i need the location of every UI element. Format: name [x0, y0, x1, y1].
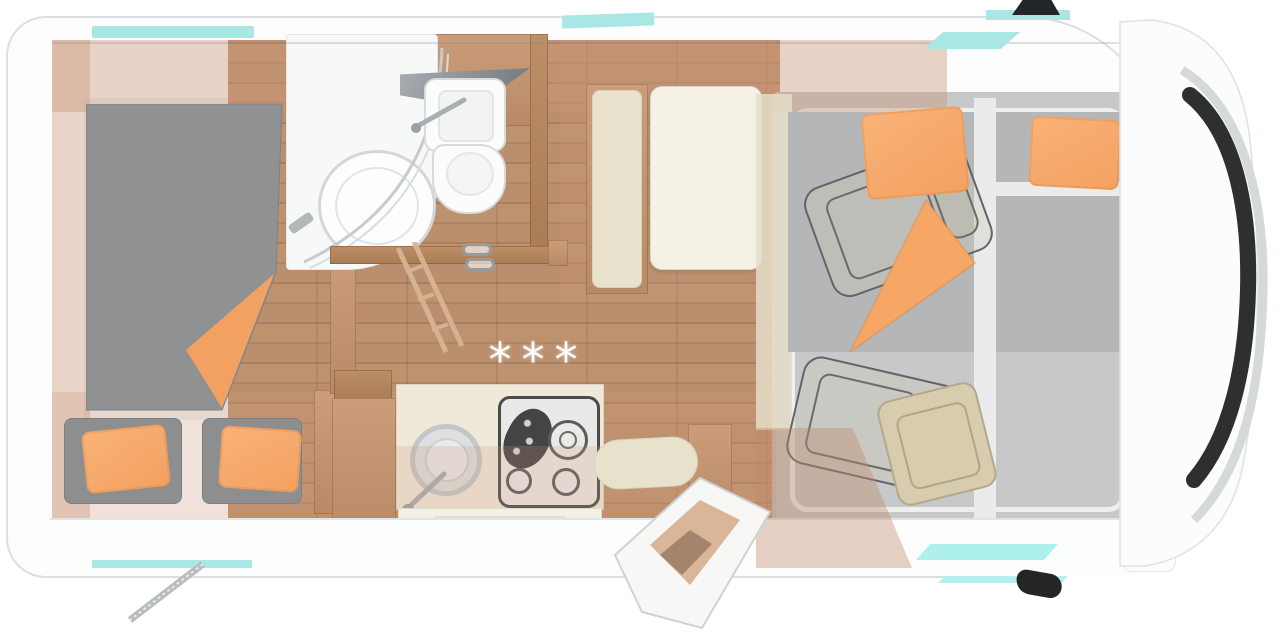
- wall-step: [548, 240, 568, 266]
- skylight-rear: [92, 26, 254, 38]
- dinette-bench-cushion: [592, 90, 642, 288]
- bed-ladder: [388, 242, 472, 360]
- rear-bed: [86, 104, 286, 416]
- pillow-rear-right: [218, 425, 302, 492]
- cab-seat-cushion: [894, 400, 982, 491]
- cab-door-window: [916, 544, 1058, 560]
- dinette-table: [650, 86, 762, 270]
- cab-front: [1090, 0, 1280, 634]
- front-blanket-triangle: [842, 196, 982, 356]
- toilet: [432, 144, 506, 214]
- side-mirror-top-icon: [1012, 0, 1060, 15]
- pillow-rear-left: [81, 424, 171, 494]
- washbasin-faucet-icon: [408, 88, 478, 134]
- counter-shadow: [396, 446, 604, 510]
- toilet-lid: [446, 152, 494, 196]
- kitchen-cabinet: [332, 398, 396, 536]
- motorhome-floorplan: ***: [0, 0, 1280, 634]
- comfort-stars: ***: [470, 330, 606, 390]
- entry-door: [590, 458, 810, 634]
- pillow-front-left: [860, 106, 969, 201]
- kitchen-shelf: [334, 370, 392, 400]
- awning-crank: [118, 558, 218, 630]
- bathroom-right-wall: [530, 34, 548, 260]
